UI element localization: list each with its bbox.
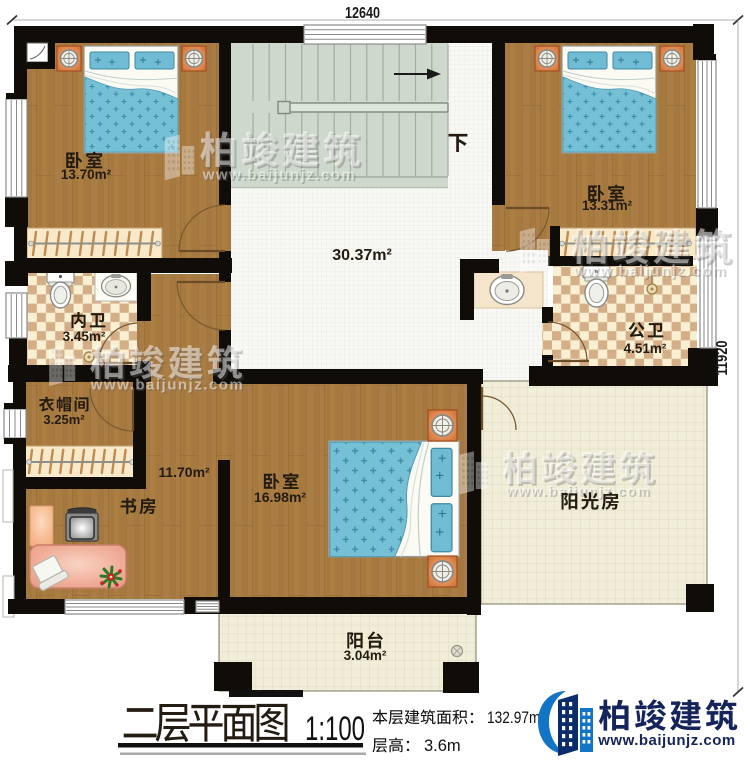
svg-text:www.baijunjz.com: www.baijunjz.com (597, 732, 735, 749)
svg-text:132.97m²: 132.97m² (487, 709, 545, 727)
svg-text:www.baijunjz.com: www.baijunjz.com (573, 263, 727, 280)
svg-text:4.51m²: 4.51m² (624, 341, 667, 356)
svg-text:3.25m²: 3.25m² (43, 412, 85, 427)
svg-text:11.70m²: 11.70m² (158, 464, 210, 480)
svg-text:www.baijunjz.com: www.baijunjz.com (505, 483, 651, 499)
svg-text:1:100: 1:100 (305, 710, 365, 748)
svg-text:3.45m²: 3.45m² (63, 329, 106, 344)
svg-text:16.98m²: 16.98m² (254, 489, 306, 505)
svg-text:13.70m²: 13.70m² (61, 167, 112, 182)
svg-text:11920: 11920 (714, 340, 731, 375)
svg-text:13.31m²: 13.31m² (582, 198, 633, 213)
svg-text:30.37m²: 30.37m² (332, 247, 392, 264)
svg-text:3.6m: 3.6m (424, 737, 461, 755)
svg-text:12640: 12640 (345, 5, 380, 22)
svg-text:www.baijunjz.com: www.baijunjz.com (90, 377, 244, 394)
svg-text:www.baijunjz.com: www.baijunjz.com (202, 167, 356, 184)
svg-text:3.04m²: 3.04m² (344, 648, 387, 663)
